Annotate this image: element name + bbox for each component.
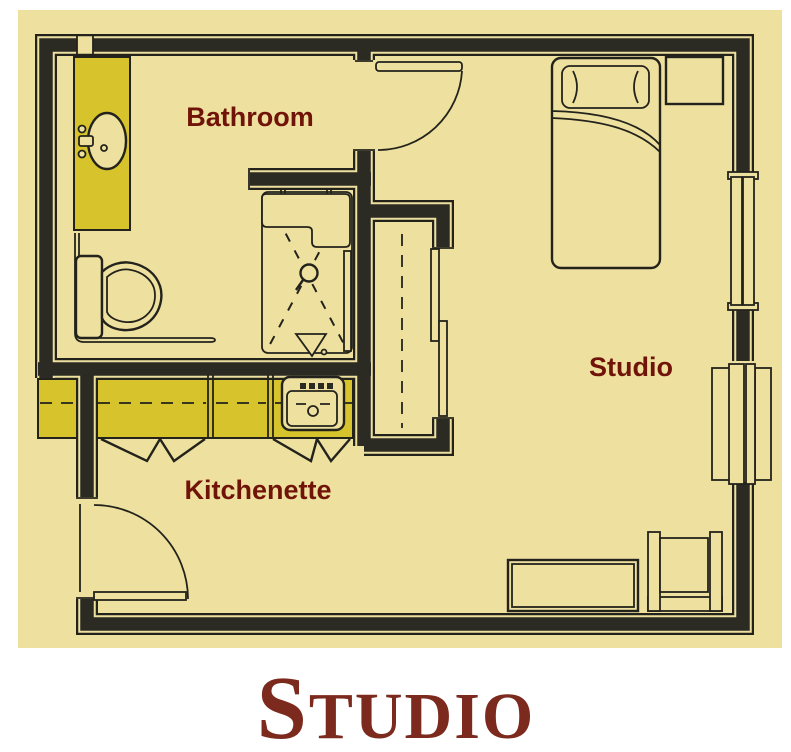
shower-door-track	[344, 251, 351, 351]
plan-title-rest: TUDIO	[309, 680, 535, 752]
window-upper	[728, 172, 758, 310]
counter-left-section	[38, 374, 78, 438]
wall-joint-notch	[77, 34, 93, 54]
plan-title-initial: S	[257, 659, 309, 752]
entry-door-leaf	[94, 592, 186, 600]
label-kitchenette: Kitchenette	[184, 475, 331, 505]
floor-plan-page: Bathroom Studio Kitchenette STUDIO	[0, 0, 791, 752]
floor-plan-canvas: Bathroom Studio Kitchenette STUDIO	[0, 0, 791, 752]
shower-drain	[301, 265, 318, 282]
shower	[262, 188, 352, 356]
window-lower	[712, 364, 771, 484]
kitchen-sink	[282, 377, 344, 430]
label-bathroom: Bathroom	[186, 102, 314, 132]
nightstand	[666, 57, 723, 104]
label-studio: Studio	[589, 352, 673, 382]
pillow	[562, 66, 649, 108]
plan-title: STUDIO	[257, 659, 535, 752]
bed	[552, 58, 660, 268]
bench	[508, 560, 638, 611]
armchair	[648, 532, 722, 611]
bathroom-door-leaf	[376, 62, 462, 71]
